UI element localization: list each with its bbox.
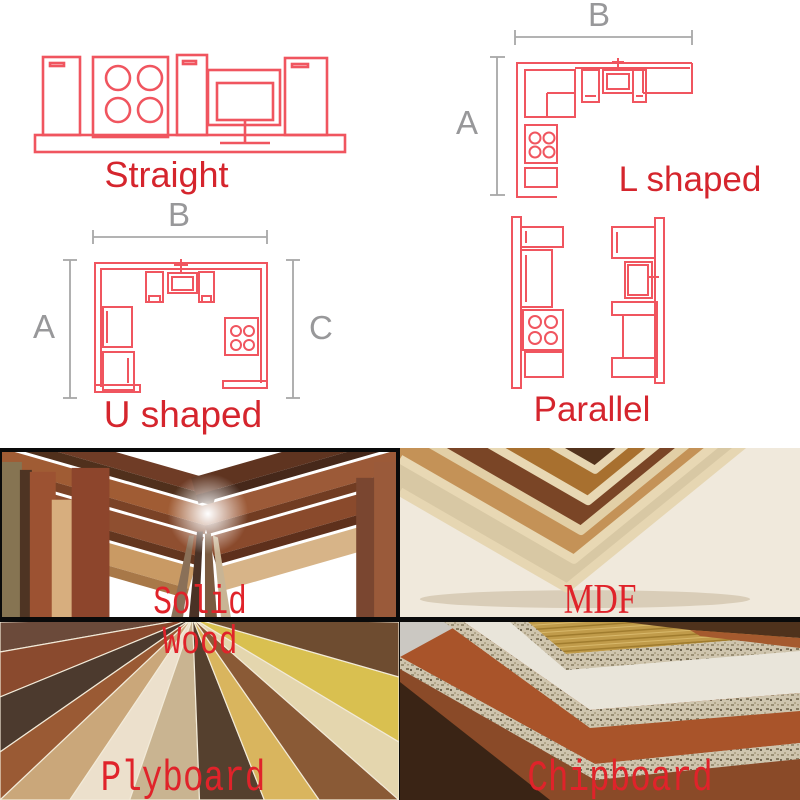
- drawer-icon: [525, 168, 557, 187]
- dim-a-label: A: [456, 104, 478, 142]
- sink-icon: [625, 262, 659, 298]
- dim-a-label: A: [33, 308, 55, 346]
- right-counter-icon: [612, 218, 664, 383]
- mdf-label: MDF: [536, 579, 664, 621]
- hanging-cabinet-icon: [146, 272, 163, 302]
- left-counter-icon: [512, 217, 563, 388]
- dim-b-label: B: [588, 0, 610, 34]
- counter-shelf: [35, 135, 345, 152]
- l-shaped-label: L shaped: [612, 161, 768, 200]
- tall-cabinet-right-icon: [285, 58, 327, 135]
- sink-icon: [168, 259, 197, 293]
- dim-c-label: C: [309, 309, 333, 347]
- parallel-label: Parallel: [522, 391, 662, 430]
- materials-grid: Solid Wood MDF: [0, 448, 800, 800]
- plyboard-label: Plyboard: [97, 757, 269, 800]
- right-vertical-boards: [356, 462, 396, 617]
- hob-icon: [525, 125, 557, 163]
- straight-label: Straight: [94, 155, 239, 195]
- corner-counter-icon: [525, 70, 575, 117]
- kitchen-infographic: Straight: [0, 0, 800, 800]
- tall-cabinet-left-icon: [43, 57, 80, 135]
- solid-wood-label: Solid Wood: [106, 584, 293, 664]
- hanging-cabinet-icon: [199, 272, 214, 302]
- dim-b-label: B: [168, 196, 190, 234]
- outer-wall: [95, 263, 267, 392]
- hob-icon: [225, 318, 258, 355]
- dimension-lines: [63, 230, 300, 398]
- left-cabinet-icon: [103, 307, 132, 347]
- u-shaped-label: U shaped: [98, 395, 268, 436]
- tall-cabinet-middle-icon: [177, 55, 207, 135]
- inner-wall: [101, 269, 261, 387]
- hanging-cabinet-icon: [633, 70, 646, 102]
- hob-unit-icon: [93, 57, 168, 137]
- left-vertical-boards: [2, 462, 109, 617]
- chipboard-label: Chipboard: [526, 757, 713, 800]
- straight-layout-diagram: [30, 50, 350, 162]
- hob-icon: [523, 310, 563, 350]
- tv-unit-icon: [208, 70, 280, 143]
- hanging-cabinet-icon: [582, 70, 599, 102]
